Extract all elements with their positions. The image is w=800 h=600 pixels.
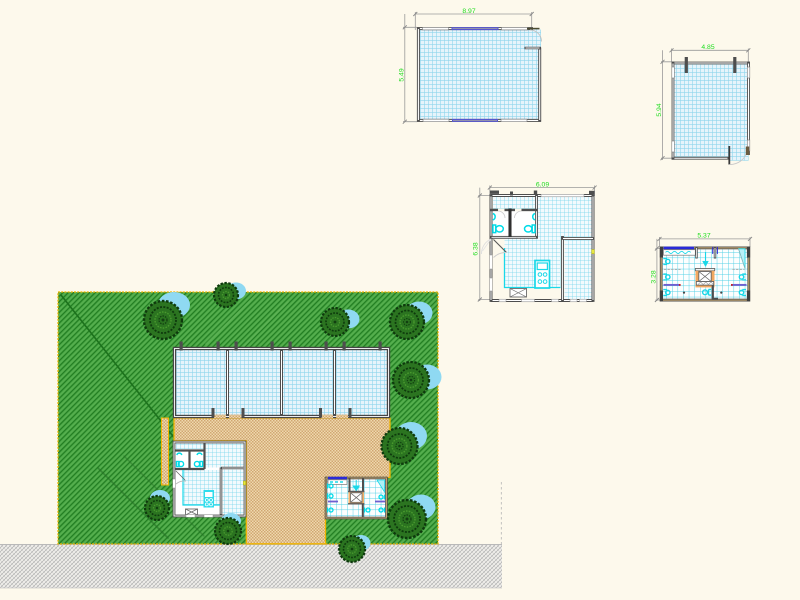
svg-text:4.85: 4.85 xyxy=(701,44,714,51)
svg-text:5.49: 5.49 xyxy=(399,68,406,81)
svg-text:5.94: 5.94 xyxy=(656,103,663,116)
svg-text:6.38: 6.38 xyxy=(473,242,480,255)
svg-text:8.97: 8.97 xyxy=(462,8,475,15)
svg-text:6.09: 6.09 xyxy=(536,181,549,188)
svg-text:5.37: 5.37 xyxy=(697,233,710,240)
svg-text:3.28: 3.28 xyxy=(651,270,658,283)
